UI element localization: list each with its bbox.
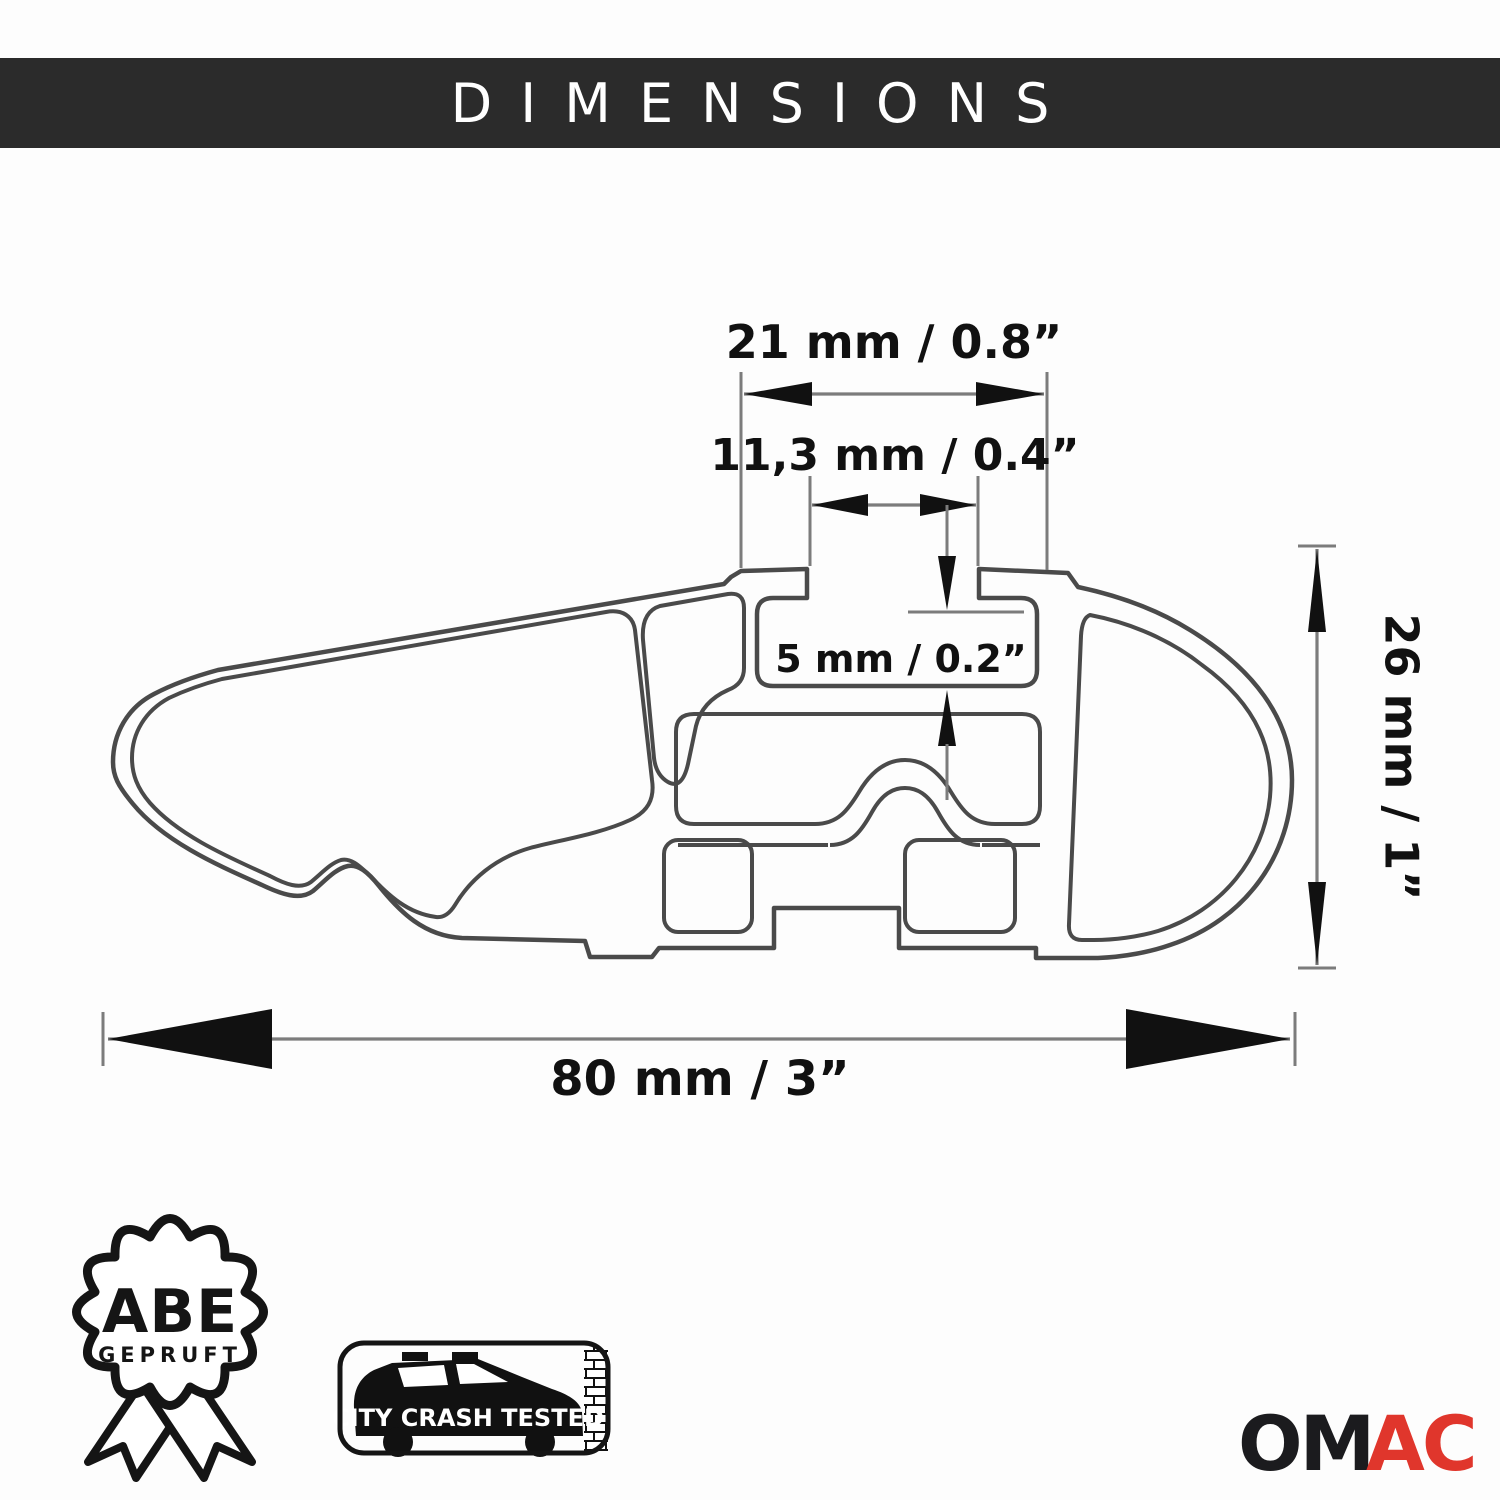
dim-top-width-arrowhead-right [976, 382, 1044, 406]
dim-overall-width-arrowhead-left [108, 1009, 272, 1069]
crash-car-window-rear [398, 1365, 448, 1387]
abe-title: ABE [102, 1277, 238, 1347]
dim-top-width-arrowhead-left [744, 382, 812, 406]
omac-logo: OM AC [1238, 1399, 1475, 1488]
dim-slot-width: 11,3 mm / 0.4” [710, 430, 1079, 566]
profile-web-chamber [643, 594, 744, 784]
profile-left-cavity [132, 611, 653, 917]
crash-label: CITY CRASH TESTED [332, 1404, 604, 1432]
dim-slot-width-arrowhead-left [812, 494, 868, 516]
dim-overall-width: 80 mm / 3” [103, 1009, 1295, 1107]
profile-foot-cavity-left [664, 840, 752, 932]
omac-logo-om: OM [1238, 1399, 1372, 1488]
dim-label-top-width: 21 mm / 0.8” [726, 315, 1062, 369]
dim-slot-depth-arrowhead-up [938, 690, 956, 746]
crash-car-roof-rail-1 [402, 1352, 428, 1361]
profile-right-cavity [1069, 615, 1271, 940]
dim-slot-depth: 5 mm / 0.2” [775, 505, 1027, 800]
dim-height-arrowhead-top [1308, 549, 1326, 632]
omac-logo-ac: AC [1366, 1399, 1475, 1488]
dim-height: 26 mm / 1” [1298, 546, 1429, 968]
crash-brick-wall [584, 1347, 608, 1451]
dim-label-slot-width: 11,3 mm / 0.4” [710, 430, 1079, 481]
crossbar-profile [113, 569, 1292, 958]
profile-outer-contour [113, 569, 1292, 958]
profile-hump-inner-line [830, 788, 980, 845]
abe-subtitle: GEPRUFT [98, 1343, 242, 1367]
abe-badge: ABE GEPRUFT [77, 1219, 264, 1479]
dimensions-diagram: 21 mm / 0.8” 11,3 mm / 0.4” 5 mm / 0.2” … [0, 0, 1500, 1500]
crash-test-badge: CITY CRASH TESTED [332, 1343, 608, 1457]
dim-slot-depth-arrowhead-down [938, 556, 956, 610]
dim-overall-width-arrowhead-right [1126, 1009, 1290, 1069]
dim-label-slot-depth: 5 mm / 0.2” [775, 637, 1027, 681]
dim-height-arrowhead-bottom [1308, 882, 1326, 965]
dim-label-height: 26 mm / 1” [1375, 614, 1429, 901]
profile-middle-cavity [676, 714, 1040, 824]
profile-foot-cavity-right [905, 840, 1015, 932]
dim-label-overall-width: 80 mm / 3” [550, 1051, 849, 1107]
